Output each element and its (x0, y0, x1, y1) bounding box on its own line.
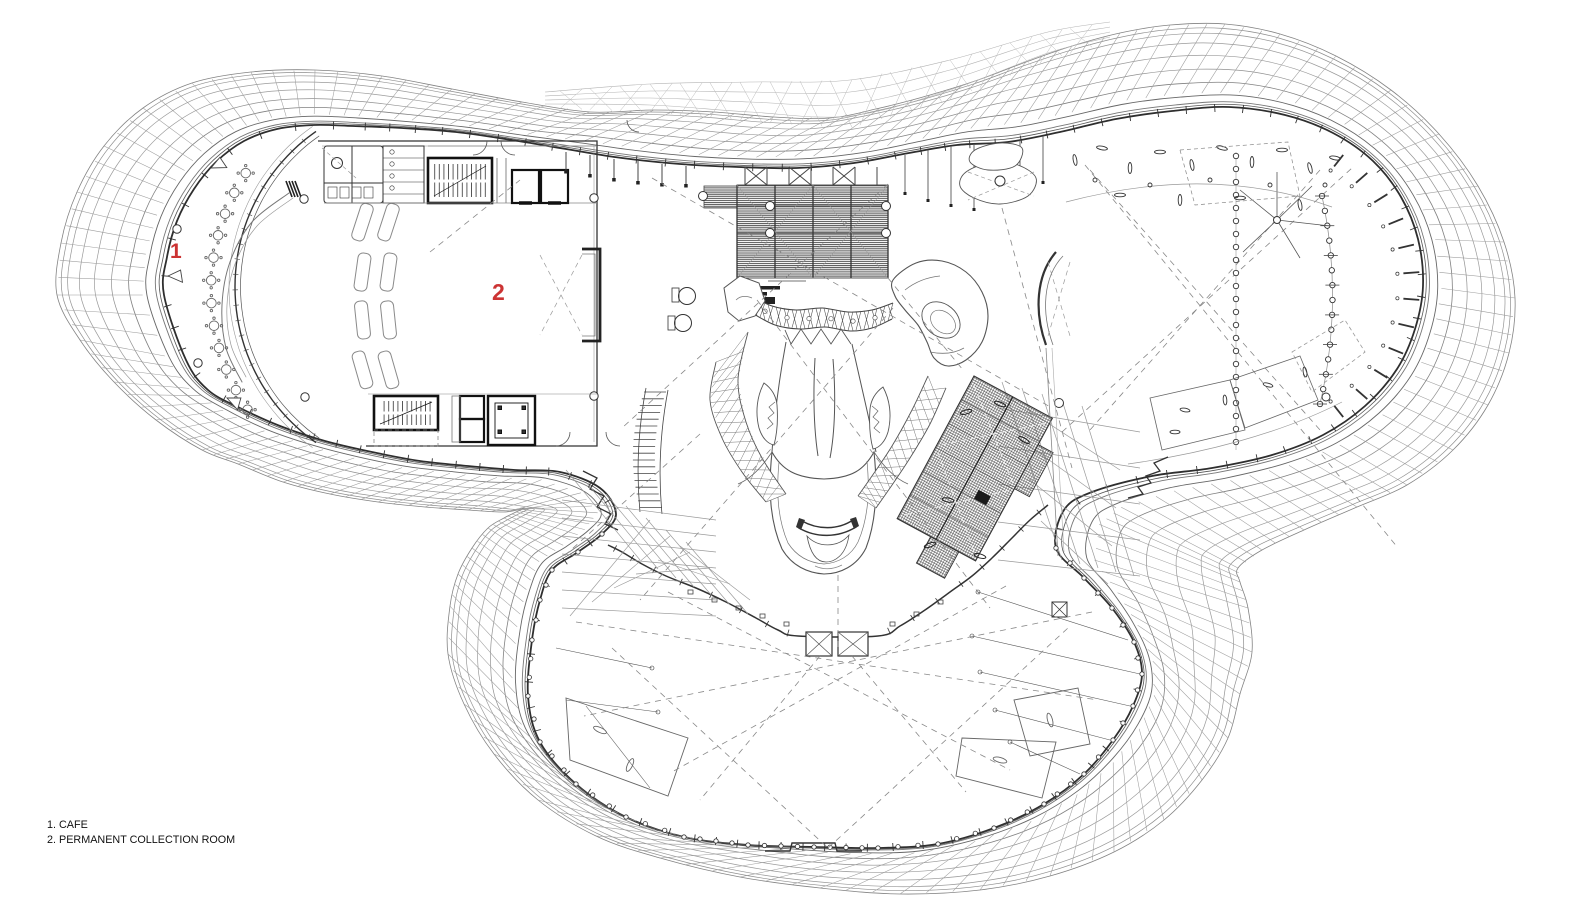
svg-text:1: 1 (170, 240, 182, 263)
svg-text:2: 2 (492, 279, 505, 305)
